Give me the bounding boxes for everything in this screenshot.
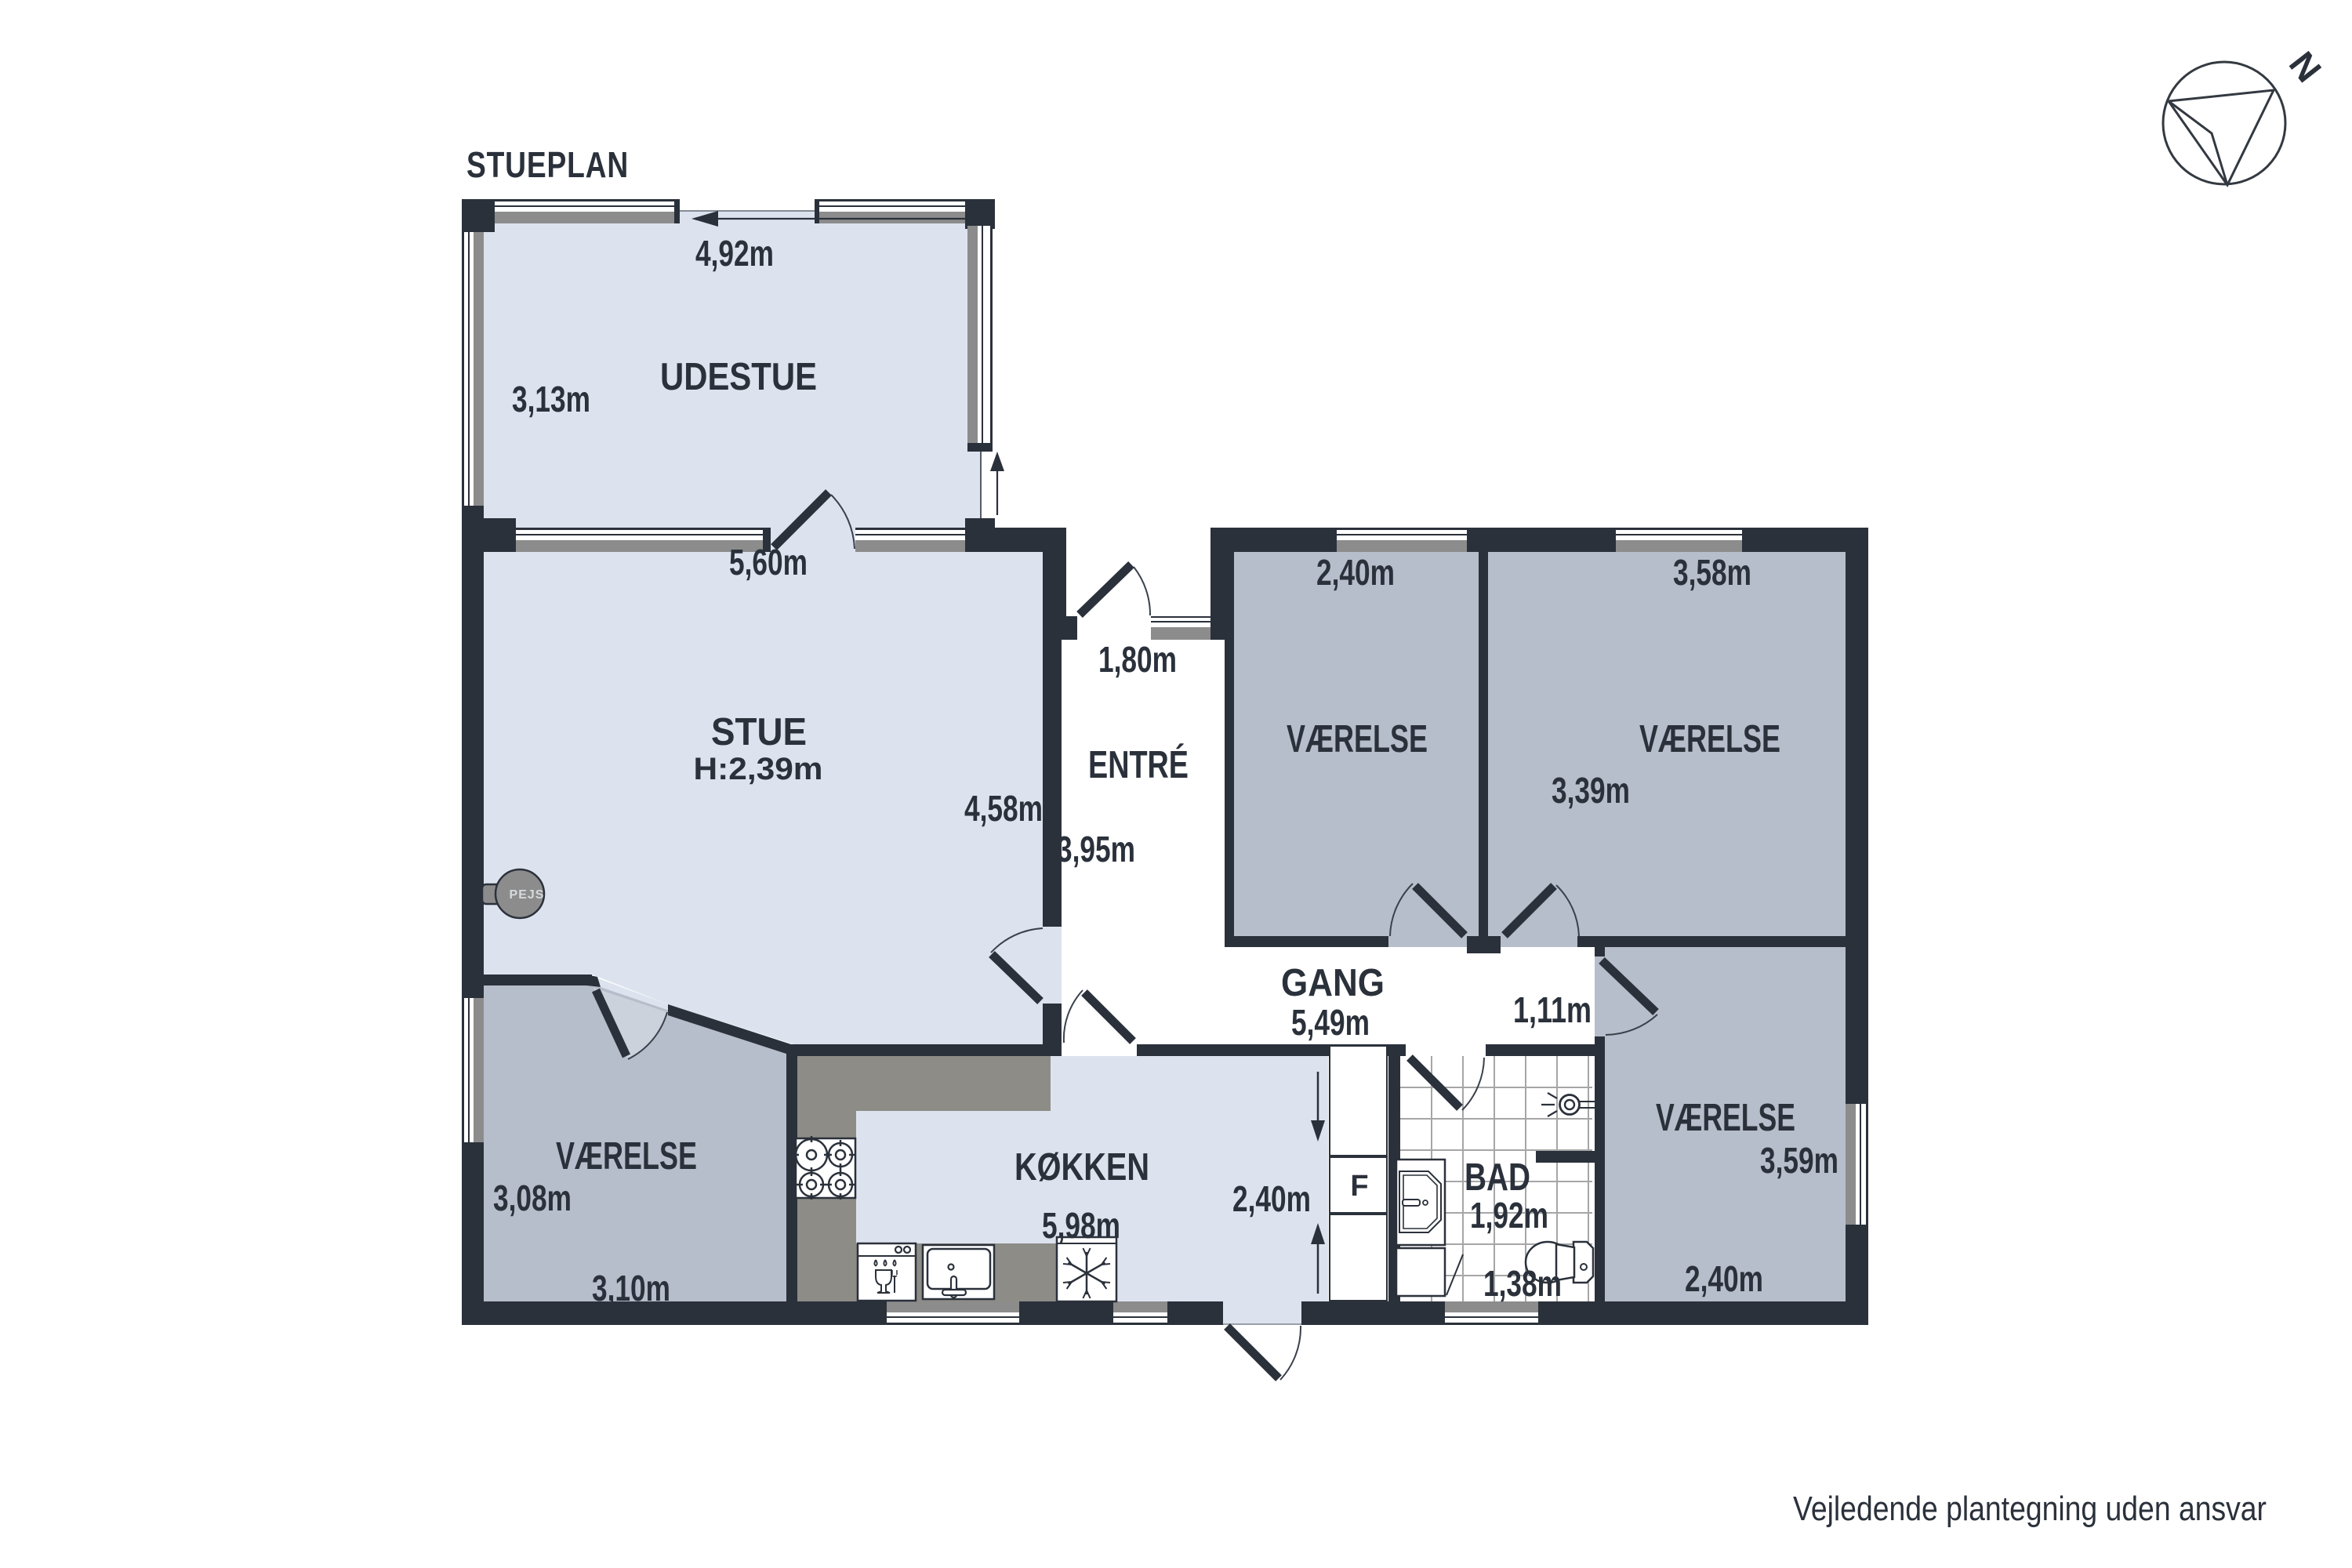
svg-text:VÆRELSE: VÆRELSE [1656, 1097, 1795, 1139]
svg-text:H:2,39m: H:2,39m [694, 752, 823, 786]
svg-text:3,10m: 3,10m [592, 1268, 670, 1308]
svg-text:2,40m: 2,40m [1232, 1178, 1311, 1219]
svg-text:UDESTUE: UDESTUE [660, 356, 817, 398]
svg-text:4,58m: 4,58m [964, 788, 1043, 829]
svg-text:Vejledende plantegning uden an: Vejledende plantegning uden ansvar [1793, 1490, 2267, 1528]
svg-text:PEJS: PEJS [510, 888, 545, 902]
svg-text:1,38m: 1,38m [1483, 1263, 1562, 1304]
svg-text:1,80m: 1,80m [1098, 639, 1177, 680]
svg-text:3,95m: 3,95m [1057, 829, 1135, 869]
svg-text:F: F [1350, 1170, 1368, 1203]
svg-text:5,98m: 5,98m [1042, 1205, 1120, 1246]
svg-text:1,11m: 1,11m [1513, 989, 1592, 1030]
svg-text:4,92m: 4,92m [695, 233, 774, 274]
svg-text:BAD: BAD [1465, 1156, 1530, 1199]
svg-text:1,92m: 1,92m [1470, 1195, 1548, 1236]
svg-text:STUE: STUE [711, 711, 807, 753]
svg-text:3,58m: 3,58m [1673, 552, 1751, 593]
svg-text:3,08m: 3,08m [493, 1178, 572, 1218]
svg-text:VÆRELSE: VÆRELSE [1639, 718, 1780, 760]
svg-text:3,13m: 3,13m [512, 379, 590, 419]
svg-text:VÆRELSE: VÆRELSE [556, 1135, 697, 1178]
svg-text:ENTRÉ: ENTRÉ [1088, 744, 1189, 786]
svg-text:3,39m: 3,39m [1552, 770, 1630, 811]
svg-text:VÆRELSE: VÆRELSE [1287, 718, 1428, 760]
svg-text:2,40m: 2,40m [1316, 552, 1395, 593]
svg-text:GANG: GANG [1281, 962, 1385, 1004]
svg-text:KØKKEN: KØKKEN [1014, 1146, 1149, 1189]
svg-text:5,60m: 5,60m [729, 542, 808, 583]
svg-text:3,59m: 3,59m [1760, 1140, 1838, 1181]
svg-text:STUEPLAN: STUEPLAN [466, 144, 629, 185]
svg-text:5,49m: 5,49m [1291, 1002, 1370, 1043]
svg-text:2,40m: 2,40m [1685, 1258, 1763, 1299]
